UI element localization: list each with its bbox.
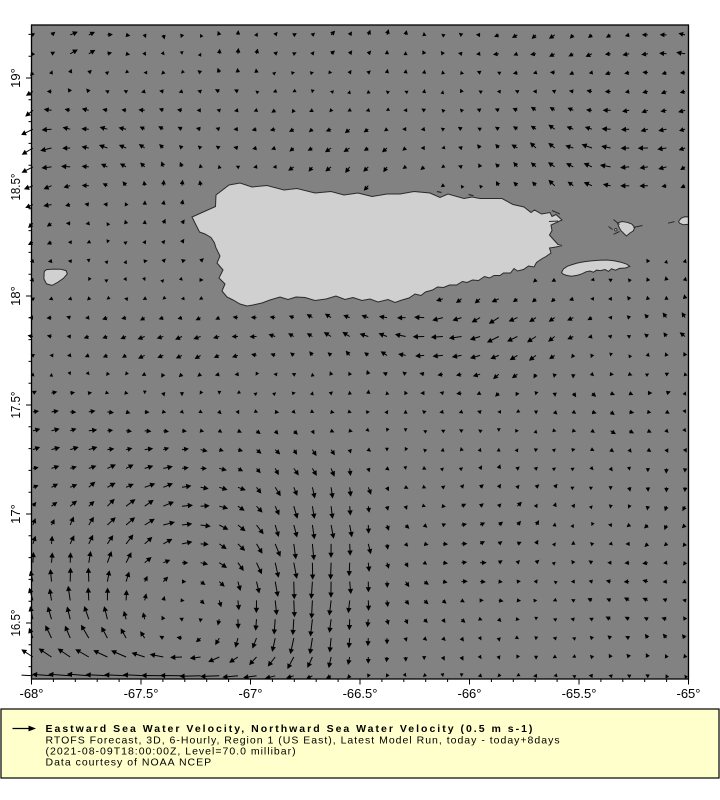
svg-text:19°: 19° bbox=[8, 68, 23, 88]
svg-text:-65°: -65° bbox=[677, 686, 701, 701]
svg-text:-65.5°: -65.5° bbox=[562, 686, 597, 701]
svg-text:17.5°: 17.5° bbox=[8, 392, 23, 419]
svg-text:-66°: -66° bbox=[458, 686, 482, 701]
svg-text:18°: 18° bbox=[8, 286, 23, 306]
svg-text:18.5°: 18.5° bbox=[8, 174, 23, 201]
svg-text:-67.5°: -67.5° bbox=[124, 686, 159, 701]
svg-text:-67°: -67° bbox=[239, 686, 263, 701]
svg-text:Data courtesy of NOAA NCEP: Data courtesy of NOAA NCEP bbox=[46, 757, 213, 769]
svg-text:-68°: -68° bbox=[20, 686, 44, 701]
svg-text:-66.5°: -66.5° bbox=[343, 686, 378, 701]
svg-text:16.5°: 16.5° bbox=[8, 610, 23, 637]
svg-text:Eastward Sea Water Velocity, N: Eastward Sea Water Velocity, Northward S… bbox=[46, 723, 535, 735]
svg-text:17°: 17° bbox=[8, 504, 23, 524]
